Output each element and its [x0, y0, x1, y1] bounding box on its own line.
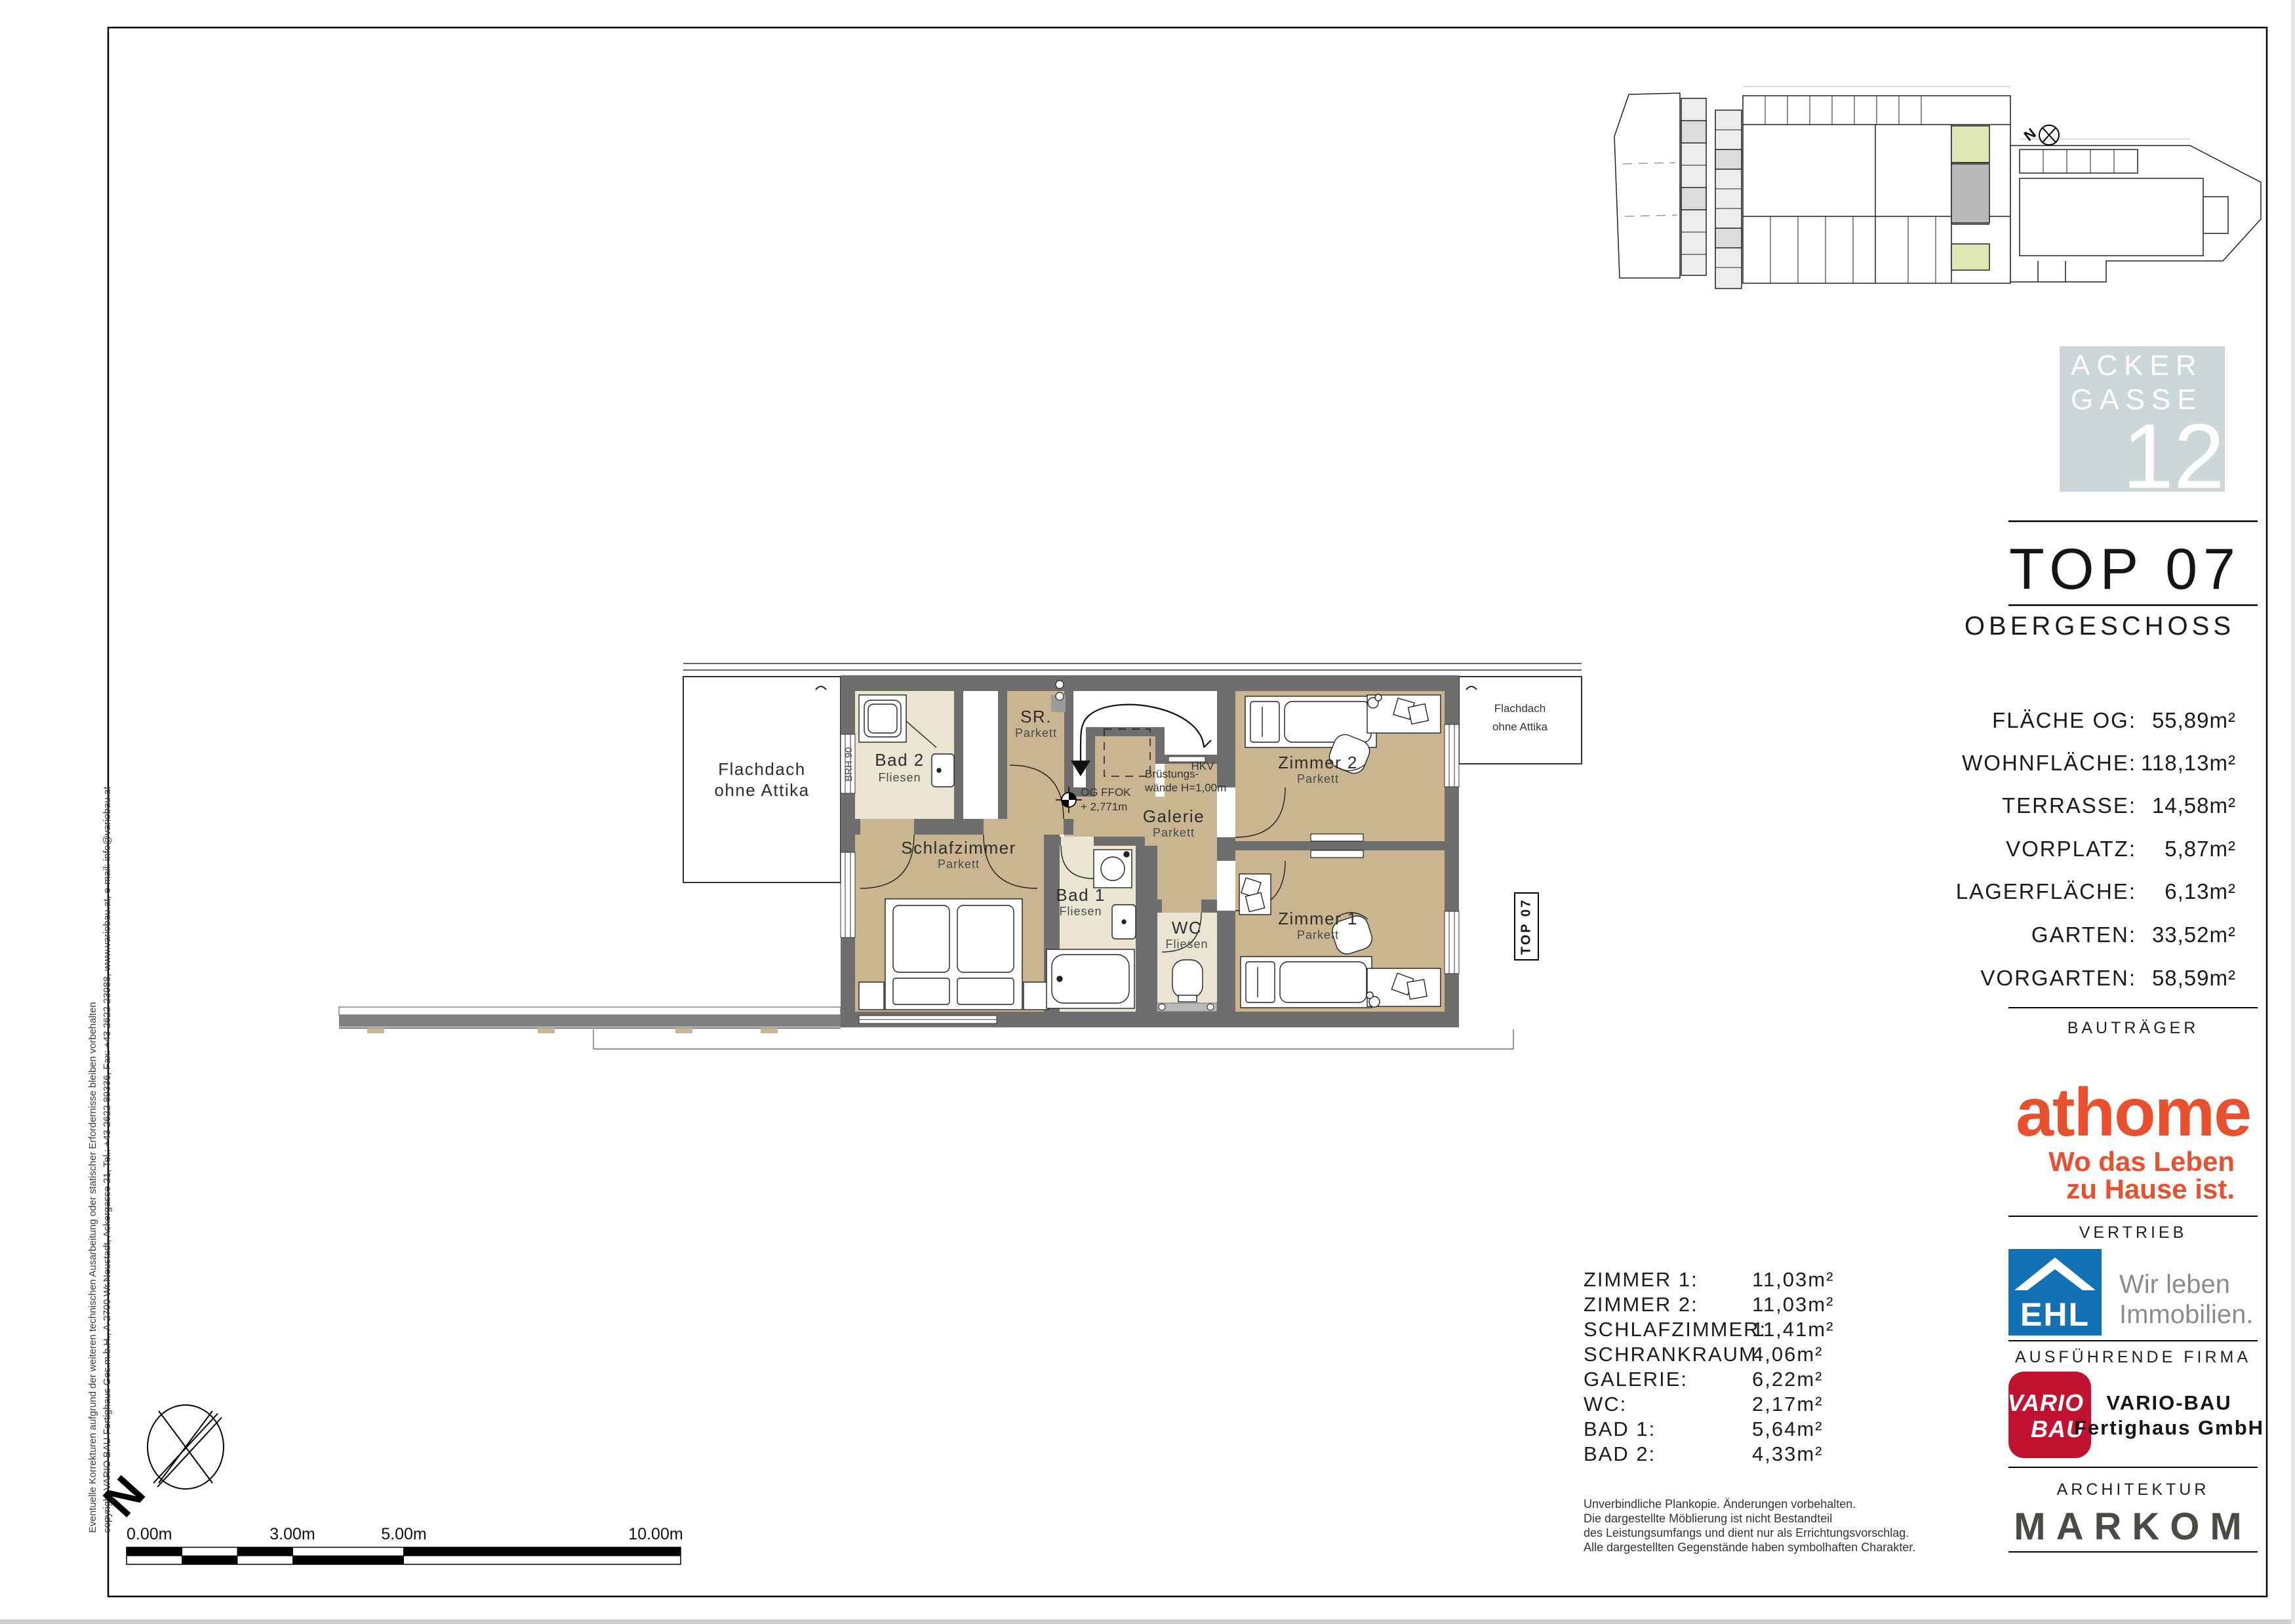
label-bad1: Bad 1: [1056, 885, 1105, 905]
section-architecture: ARCHITEKTUR: [2057, 1480, 2210, 1499]
section-sales: VERTRIEB: [2079, 1223, 2187, 1242]
label-zimmer1: Zimmer 1: [1278, 909, 1358, 928]
label-flachdach-left-1: Flachdach: [718, 759, 805, 779]
north-arrow: [148, 1405, 224, 1489]
plan-sheet: Eventuelle Korrekturen aufgrund der weit…: [0, 0, 2295, 1624]
svg-text:6,13m²: 6,13m²: [2165, 879, 2236, 903]
svg-text:11,03m²: 11,03m²: [1752, 1268, 1834, 1291]
site-north-letter: N: [2021, 125, 2039, 144]
svg-text:WC:: WC:: [1584, 1393, 1627, 1416]
svg-text:33,52m²: 33,52m²: [2152, 922, 2236, 947]
label-bad2: Bad 2: [875, 750, 924, 770]
label-wc-finish: Fliesen: [1165, 938, 1208, 951]
margin-note-revision: Eventuelle Korrekturen aufgrund der weit…: [87, 1002, 98, 1533]
label-bruestung-2: wände H=1,00m: [1144, 782, 1226, 794]
section-developer: BAUTRÄGER: [2067, 1019, 2199, 1037]
brand-line1: ACKER: [2071, 349, 2203, 382]
label-flachdach-left-2: ohne Attika: [714, 780, 809, 800]
site-green-cell-top: [1951, 126, 1989, 163]
page-bottom-edge: [0, 1619, 2295, 1624]
label-zimmer2: Zimmer 2: [1278, 753, 1358, 772]
floor-plan: TOP 07 Bad 2 Fliesen BRH 90 SR. Parkett …: [339, 663, 1582, 1049]
margin-notes: Eventuelle Korrekturen aufgrund der weit…: [87, 786, 113, 1533]
site-left-lot: [1614, 93, 1680, 278]
label-sr-finish: Parkett: [1015, 726, 1057, 740]
svg-text:VORPLATZ:: VORPLATZ:: [2006, 837, 2136, 861]
label-brh: BRH 90: [843, 747, 854, 782]
vario-company2: Fertighaus GmbH: [2074, 1416, 2264, 1439]
svg-text:GARTEN:: GARTEN:: [2031, 922, 2136, 947]
athome-tagline1: Wo das Leben: [2048, 1146, 2235, 1177]
svg-text:11,03m²: 11,03m²: [1752, 1293, 1834, 1316]
svg-text:ZIMMER 1:: ZIMMER 1:: [1584, 1268, 1698, 1291]
svg-text:SCHRANKRAUM:: SCHRANKRAUM:: [1584, 1343, 1764, 1366]
site-garage-strip-b: [1715, 110, 1742, 288]
svg-text:ZIMMER 2:: ZIMMER 2:: [1584, 1293, 1698, 1316]
floor-duct-niche: [963, 691, 998, 819]
svg-text:5,87m²: 5,87m²: [2165, 837, 2236, 861]
lower-storey-outline: [593, 1029, 1513, 1049]
svg-text:2,17m²: 2,17m²: [1752, 1393, 1823, 1416]
floor-title: OBERGESCHOSS: [1965, 612, 2235, 641]
brand-number: 12: [2123, 405, 2225, 507]
disclaimer: Unverbindliche Plankopie. Änderungen vor…: [1584, 1497, 1915, 1554]
unit-title: TOP 07: [2009, 536, 2241, 601]
svg-text:5,64m²: 5,64m²: [1752, 1417, 1823, 1440]
svg-text:des Leistungsumfangs und dient: des Leistungsumfangs und dient nur als E…: [1584, 1526, 1909, 1539]
svg-text:4,33m²: 4,33m²: [1752, 1442, 1823, 1465]
label-zimmer1-finish: Parkett: [1297, 928, 1339, 941]
vario-company1: VARIO-BAU: [2106, 1391, 2231, 1414]
vario-logo: VARIO BAU: [2008, 1372, 2091, 1458]
scale-bar: 0.00m 3.00m 5.00m 10.00m: [127, 1525, 683, 1564]
svg-text:VORGARTEN:: VORGARTEN:: [1980, 966, 2136, 990]
svg-text:58,59m²: 58,59m²: [2152, 966, 2236, 990]
margin-note-copyright: copyright VARIO BAU Fertighaus Ges.m.b.H…: [102, 786, 113, 1533]
scale-10: 10.00m: [628, 1525, 683, 1543]
label-galerie: Galerie: [1143, 806, 1205, 826]
title-block: ACKER GASSE 12 TOP 07 OBERGESCHOSS FLÄCH…: [1956, 346, 2264, 1552]
label-schlafzimmer: Schlafzimmer: [901, 838, 1016, 858]
section-contractor: AUSFÜHRENDE FIRMA: [2015, 1348, 2251, 1366]
label-bad2-finish: Fliesen: [878, 771, 921, 784]
site-plan: N: [1614, 87, 2261, 288]
label-sr: SR.: [1020, 707, 1052, 726]
svg-text:GALERIE:: GALERIE:: [1584, 1368, 1688, 1391]
svg-text:Unverbindliche Plankopie. Ände: Unverbindliche Plankopie. Änderungen vor…: [1584, 1497, 1856, 1511]
svg-text:TERRASSE:: TERRASSE:: [2002, 793, 2136, 818]
scale-0: 0.00m: [127, 1525, 172, 1543]
label-schlafzimmer-finish: Parkett: [938, 858, 980, 871]
site-gray-cell-top07: [1951, 164, 1989, 223]
svg-text:Die dargestellte Möblierung is: Die dargestellte Möblierung ist nicht Be…: [1584, 1512, 1832, 1525]
svg-text:BAD 1:: BAD 1:: [1584, 1417, 1656, 1440]
vent-pipe-icon: [1056, 681, 1064, 688]
svg-text:118,13m²: 118,13m²: [2141, 751, 2236, 775]
unit-tag: TOP 07: [1515, 893, 1538, 960]
athome-wordmark: athome: [2016, 1075, 2250, 1151]
label-level-2: + 2,771m: [1081, 801, 1127, 813]
page-right-edge: [2291, 0, 2295, 1624]
svg-text:4,06m²: 4,06m²: [1752, 1343, 1823, 1366]
label-hkv: HKV: [1191, 760, 1215, 772]
svg-text:55,89m²: 55,89m²: [2152, 708, 2236, 732]
label-flachdach-right-1: Flachdach: [1494, 702, 1546, 715]
scale-3: 3.00m: [269, 1525, 315, 1543]
svg-text:LAGERFLÄCHE:: LAGERFLÄCHE:: [1956, 879, 2136, 903]
terrace-band: [339, 1007, 841, 1033]
label-wc: WC: [1172, 918, 1202, 938]
svg-text:Alle dargestellten Gegenstände: Alle dargestellten Gegenstände haben sym…: [1584, 1541, 1915, 1554]
svg-text:BAD 2:: BAD 2:: [1584, 1442, 1656, 1465]
svg-text:WOHNFLÄCHE:: WOHNFLÄCHE:: [1962, 751, 2136, 775]
area-table: FLÄCHE OG: 55,89m² WOHNFLÄCHE: 118,13m² …: [1956, 708, 2236, 990]
svg-text:6,22m²: 6,22m²: [1752, 1368, 1823, 1391]
vario-logo-line1: VARIO: [2008, 1389, 2084, 1416]
wc-drain-strip: [1153, 1003, 1217, 1012]
site-green-cell-bottom: [1951, 244, 1989, 270]
svg-text:FLÄCHE OG:: FLÄCHE OG:: [1992, 708, 2136, 732]
label-level-1: OG FFOK: [1081, 786, 1131, 799]
athome-tagline2: zu Hause ist.: [2066, 1174, 2235, 1204]
ehl-slogan2: Immobilien.: [2119, 1300, 2254, 1329]
label-bad1-finish: Fliesen: [1059, 905, 1102, 918]
vent-pipe-icon: [1056, 692, 1064, 700]
flachdach-left: [683, 677, 841, 882]
site-north-icon: [2039, 125, 2059, 145]
room-list: ZIMMER 1:11,03m² ZIMMER 2:11,03m² SCHLAF…: [1584, 1268, 1834, 1465]
svg-text:SCHLAFZIMMER:: SCHLAFZIMMER:: [1584, 1318, 1766, 1341]
ehl-slogan1: Wir leben: [2119, 1270, 2230, 1299]
label-zimmer2-finish: Parkett: [1297, 772, 1339, 785]
ehl-wordmark: EHL: [2020, 1296, 2090, 1333]
unit-tag-label: TOP 07: [1519, 898, 1533, 955]
ehl-logo: EHL: [2008, 1249, 2102, 1336]
label-flachdach-right-2: ohne Attika: [1492, 721, 1548, 733]
scale-5: 5.00m: [381, 1525, 426, 1543]
markom-wordmark: MARKOM: [2014, 1505, 2252, 1548]
label-galerie-finish: Parkett: [1153, 826, 1195, 839]
svg-text:11,41m²: 11,41m²: [1752, 1318, 1834, 1341]
svg-text:14,58m²: 14,58m²: [2152, 793, 2236, 818]
